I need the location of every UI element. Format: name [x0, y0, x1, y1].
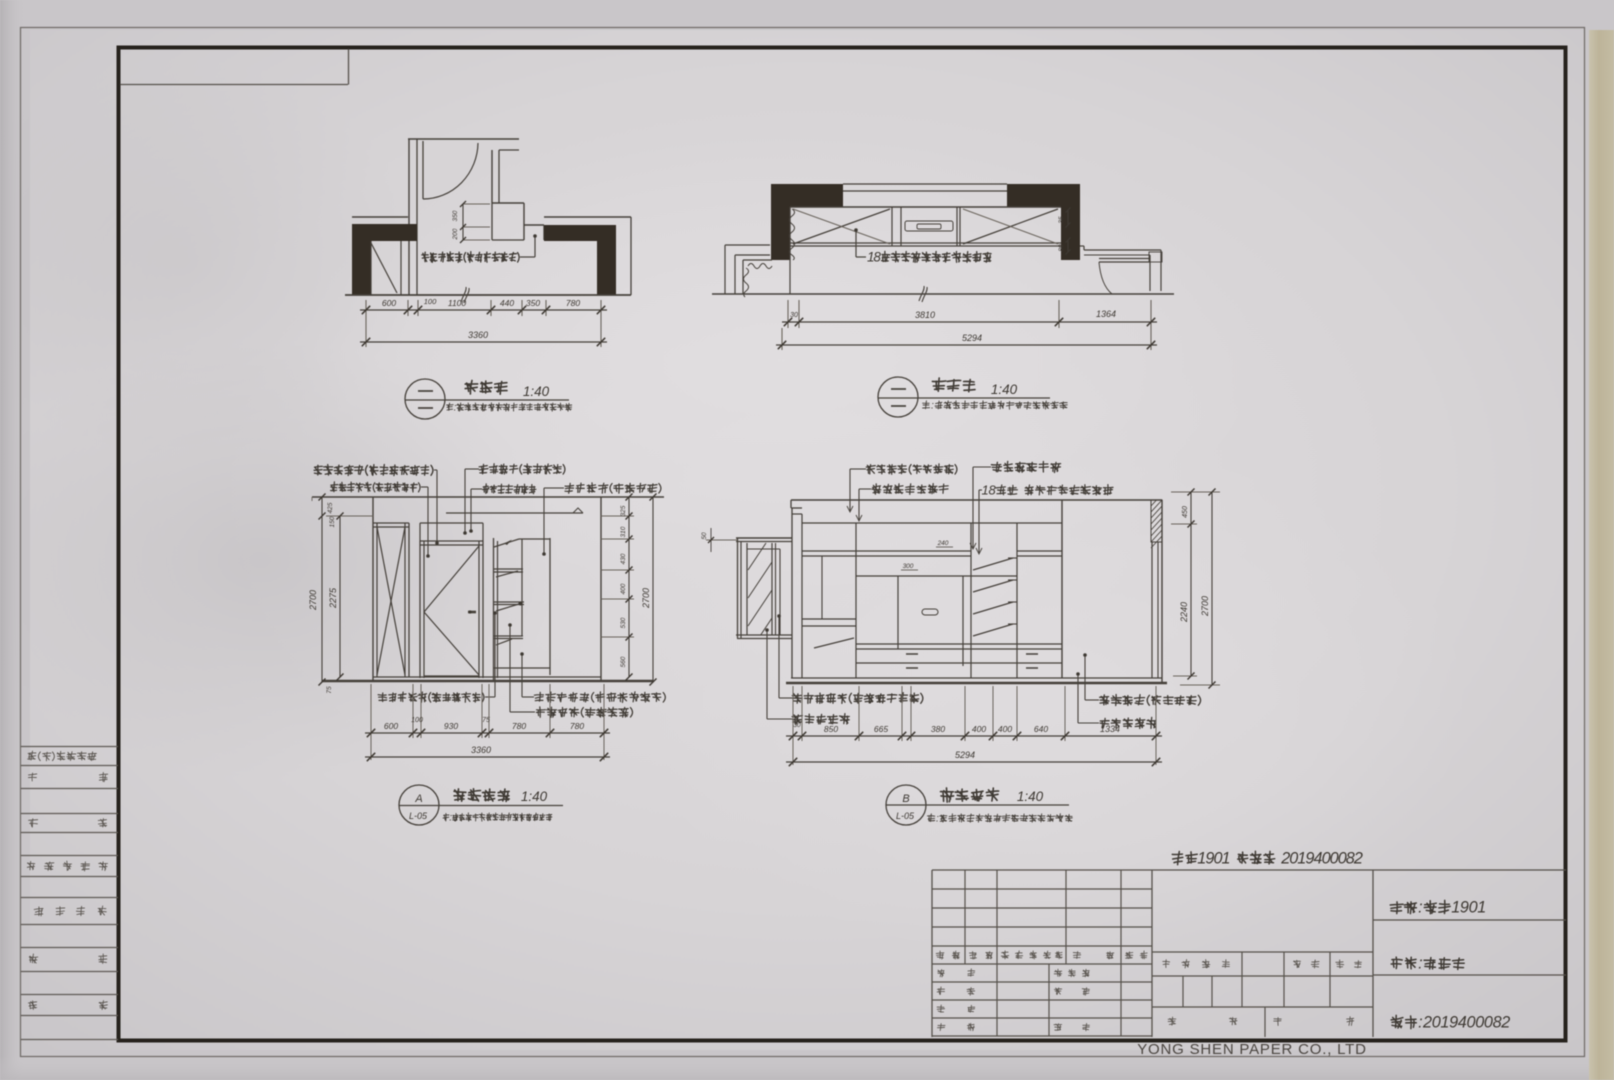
svg-text:9: 9 — [1460, 898, 1469, 916]
svg-text:2: 2 — [1422, 1013, 1432, 1031]
svg-text::: : — [936, 813, 939, 824]
svg-text:100: 100 — [411, 717, 423, 724]
svg-text:8: 8 — [873, 250, 881, 265]
svg-text:1: 1 — [1440, 1013, 1449, 1031]
svg-text:3360: 3360 — [471, 745, 491, 755]
svg-text:850: 850 — [824, 724, 838, 734]
svg-text:600: 600 — [382, 298, 396, 308]
svg-text::: : — [454, 402, 457, 413]
svg-text:780: 780 — [570, 721, 584, 731]
svg-text:A: A — [414, 793, 422, 805]
svg-text:5294: 5294 — [955, 750, 975, 760]
svg-text:2700: 2700 — [1200, 596, 1210, 617]
svg-text:440: 440 — [500, 298, 514, 308]
svg-text:380: 380 — [931, 724, 945, 734]
svg-text:2700: 2700 — [308, 590, 318, 611]
svg-text:2: 2 — [1353, 849, 1363, 867]
svg-text:2275: 2275 — [328, 587, 338, 609]
svg-text:310: 310 — [620, 526, 627, 537]
svg-text:50: 50 — [701, 532, 708, 540]
svg-text:YONG SHEN PAPER CO., LTD: YONG SHEN PAPER CO., LTD — [1137, 1041, 1367, 1058]
svg-text:1334: 1334 — [1100, 724, 1120, 734]
svg-text::: : — [931, 400, 934, 411]
svg-text:30: 30 — [790, 312, 798, 319]
svg-text:1: 1 — [1477, 898, 1486, 916]
svg-text:80: 80 — [1058, 244, 1065, 252]
svg-text:530: 530 — [620, 617, 627, 628]
svg-text::: : — [449, 812, 452, 823]
svg-text:4: 4 — [1458, 1013, 1467, 1031]
svg-text:1:40: 1:40 — [991, 382, 1018, 397]
svg-text:665: 665 — [874, 724, 888, 734]
svg-text:100: 100 — [424, 297, 437, 306]
svg-text:240: 240 — [937, 540, 949, 547]
svg-text:300: 300 — [903, 563, 914, 570]
svg-text:0: 0 — [1484, 1013, 1493, 1031]
svg-text::: : — [1418, 954, 1423, 972]
svg-text:1:40: 1:40 — [1017, 789, 1044, 804]
svg-text:8: 8 — [1493, 1013, 1502, 1031]
svg-text:1:40: 1:40 — [523, 384, 550, 399]
svg-text:0: 0 — [1475, 1013, 1484, 1031]
svg-text:200: 200 — [452, 228, 459, 240]
svg-text:325: 325 — [620, 505, 627, 516]
svg-text:2240: 2240 — [1179, 602, 1189, 623]
svg-text:30: 30 — [793, 722, 801, 729]
svg-text::: : — [1418, 1013, 1423, 1031]
svg-text:1: 1 — [1221, 849, 1230, 867]
svg-text:640: 640 — [1034, 724, 1048, 734]
svg-text:560: 560 — [620, 656, 627, 667]
svg-text:8: 8 — [988, 482, 996, 497]
svg-text:1:40: 1:40 — [521, 789, 548, 804]
svg-text:0: 0 — [1469, 898, 1478, 916]
svg-text:5294: 5294 — [962, 333, 982, 343]
svg-text:1364: 1364 — [1096, 309, 1116, 319]
svg-text:780: 780 — [512, 721, 526, 731]
svg-text:350: 350 — [452, 210, 459, 221]
svg-text:930: 930 — [444, 721, 458, 731]
svg-text:0: 0 — [1432, 1013, 1441, 1031]
svg-text:0: 0 — [1466, 1013, 1475, 1031]
svg-text:9: 9 — [1449, 1013, 1458, 1031]
svg-text:600: 600 — [384, 721, 398, 731]
svg-text:450: 450 — [1182, 506, 1189, 518]
svg-text:780: 780 — [566, 298, 580, 308]
svg-text:L-05: L-05 — [896, 811, 915, 821]
svg-text:430: 430 — [620, 553, 627, 564]
svg-text:400: 400 — [620, 583, 627, 594]
svg-text:400: 400 — [972, 724, 986, 734]
svg-text:1: 1 — [1451, 898, 1460, 916]
svg-text:75: 75 — [326, 686, 333, 694]
svg-text:35: 35 — [1058, 216, 1065, 224]
svg-text::: : — [1418, 898, 1423, 916]
svg-text:425: 425 — [327, 502, 334, 513]
svg-text:B: B — [902, 793, 909, 805]
svg-text:150: 150 — [329, 516, 336, 527]
svg-text:350: 350 — [526, 298, 540, 308]
svg-text:L-05: L-05 — [409, 811, 428, 821]
svg-text:400: 400 — [998, 724, 1012, 734]
svg-text:3810: 3810 — [915, 310, 935, 320]
svg-text:2700: 2700 — [641, 588, 651, 609]
svg-text:2: 2 — [1500, 1013, 1510, 1031]
svg-text:1100: 1100 — [448, 298, 467, 308]
svg-text:3360: 3360 — [468, 330, 488, 340]
svg-text:75: 75 — [482, 717, 490, 724]
